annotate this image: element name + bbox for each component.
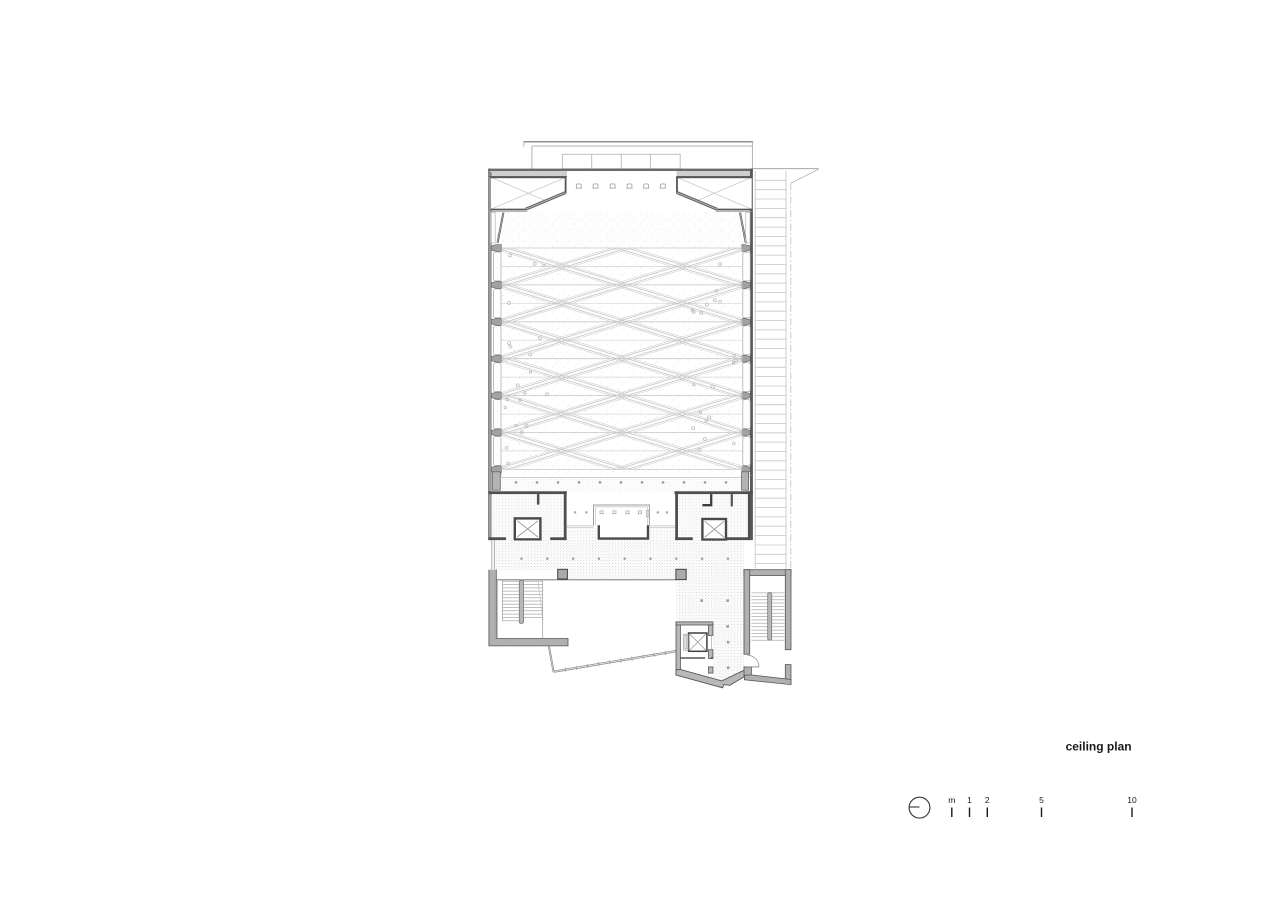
svg-text:ceiling plan: ceiling plan (1066, 740, 1132, 754)
svg-text:1: 1 (967, 795, 972, 805)
svg-text:10: 10 (1127, 795, 1137, 805)
svg-text:m: m (948, 795, 955, 805)
svg-text:5: 5 (1039, 795, 1044, 805)
svg-text:2: 2 (985, 795, 990, 805)
